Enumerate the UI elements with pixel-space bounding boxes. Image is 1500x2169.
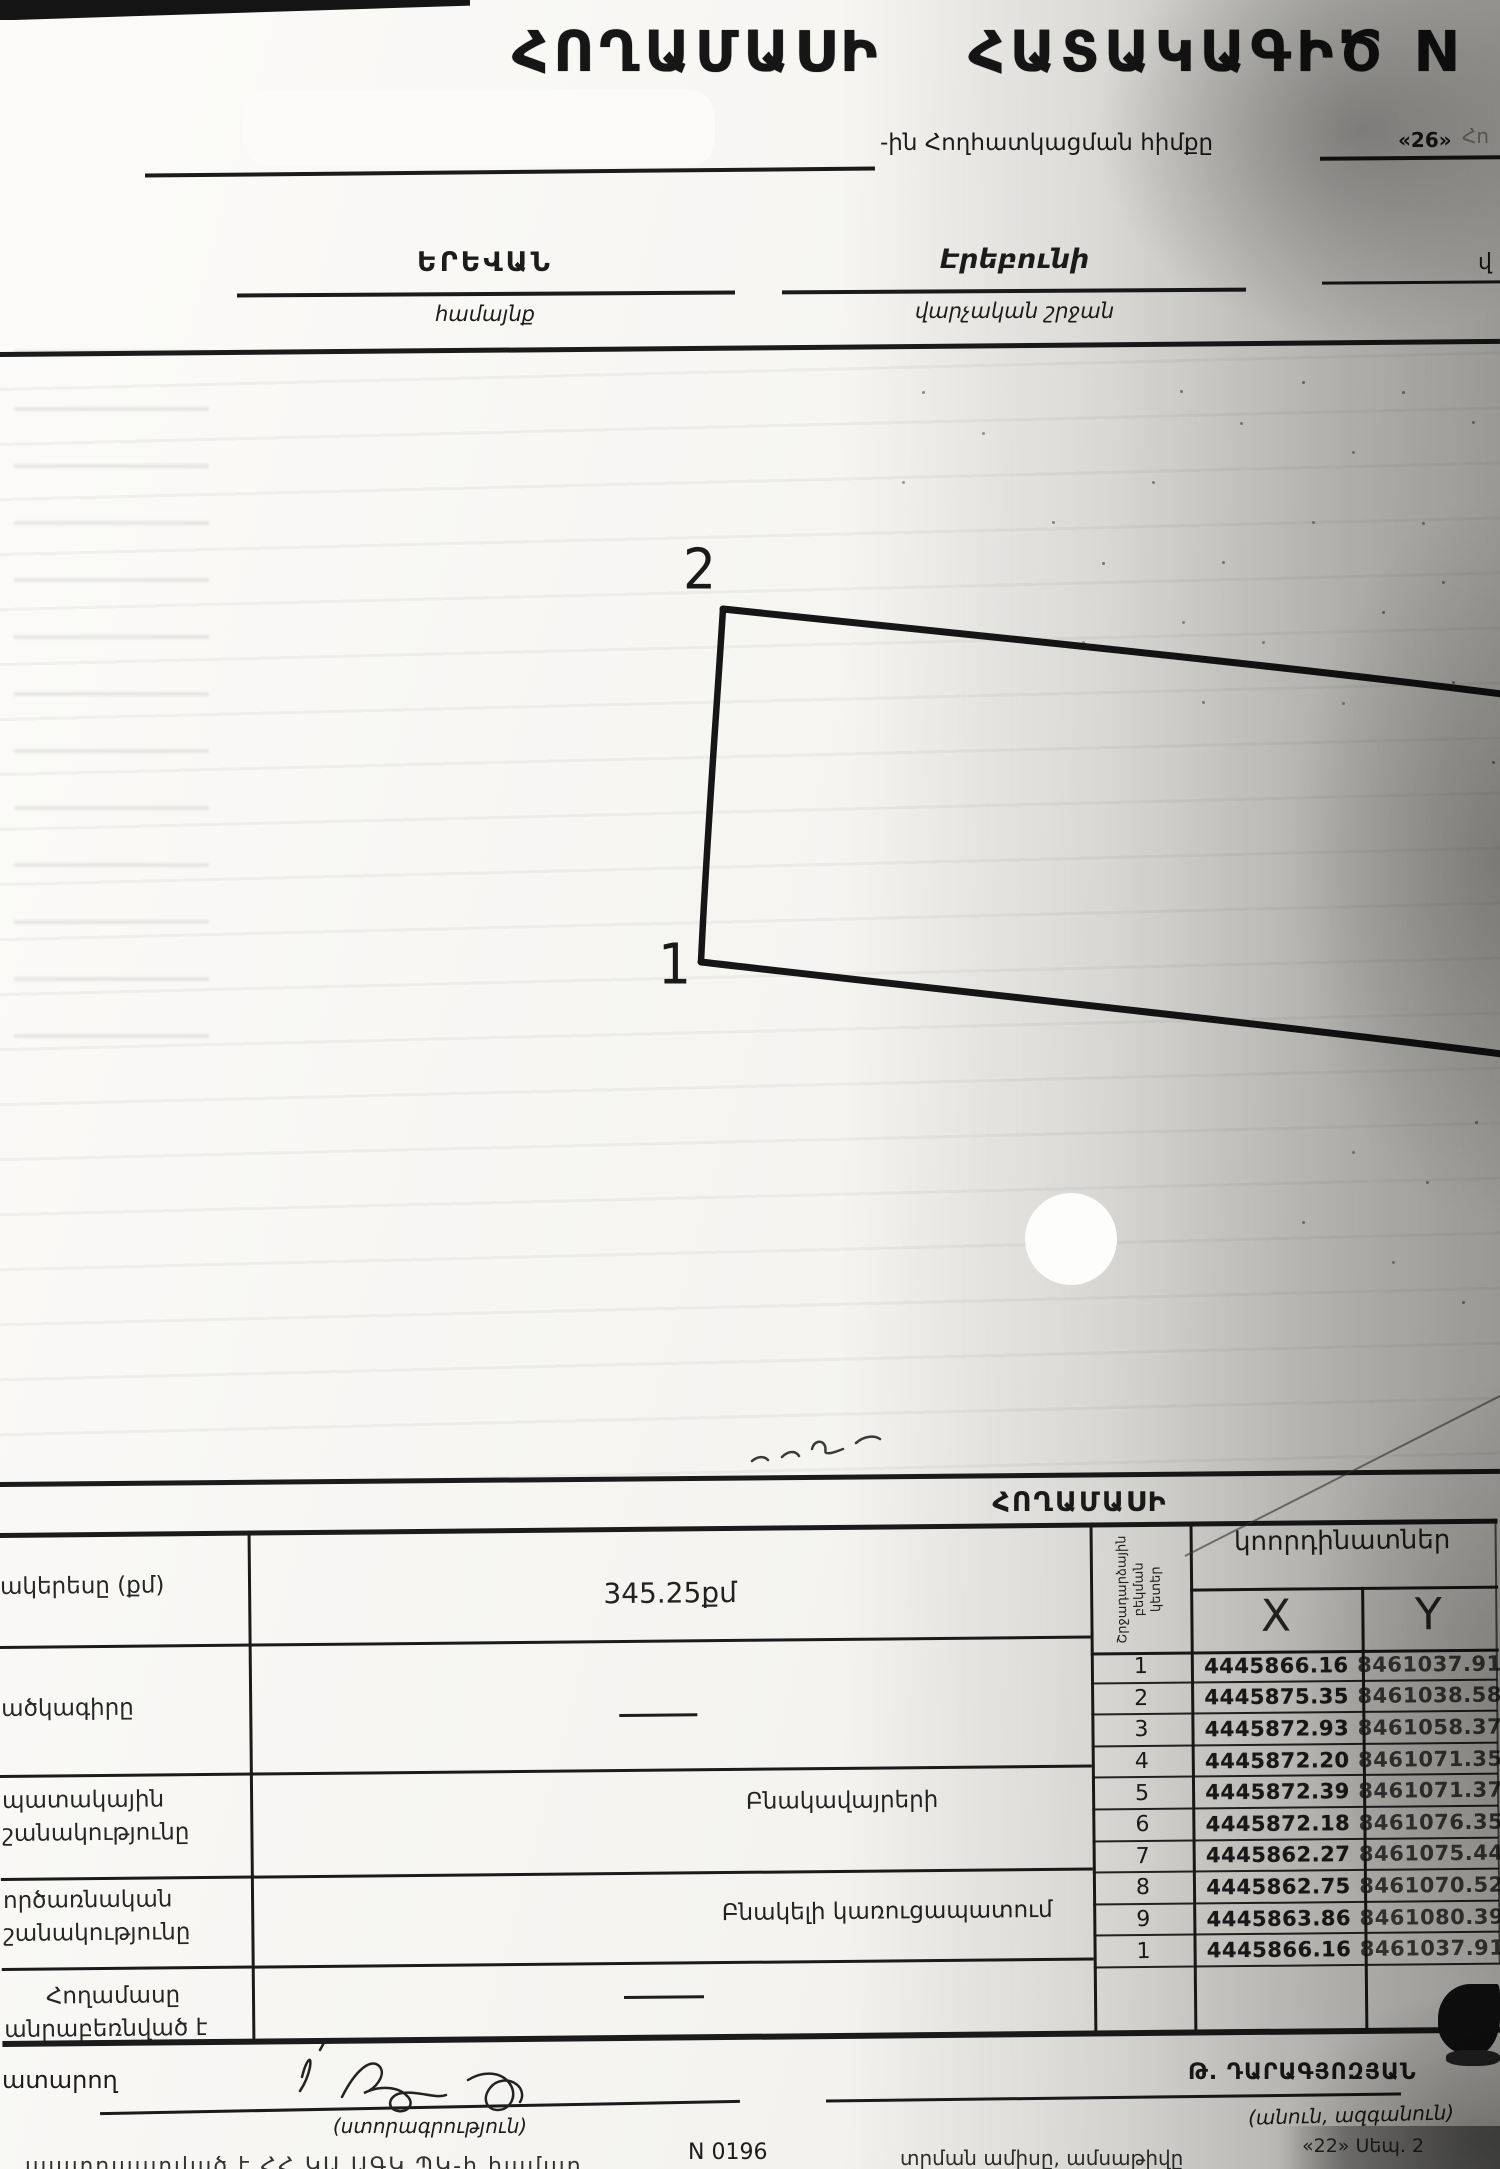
- community-caption: համայնք: [235, 302, 735, 326]
- x-value: 4445866.16: [1191, 1650, 1362, 1683]
- table-row-border: [2, 1958, 1094, 1971]
- district-caption: վարչական շրջան: [782, 299, 1247, 323]
- x-value: 4445862.75: [1193, 1871, 1364, 1904]
- performer-label: ատարող: [2, 2066, 118, 2094]
- x-value: 4445872.18: [1192, 1808, 1363, 1841]
- attributes-and-coordinates-table: ակերեսը (քմ) 345.25քմ ածկագիրը պատակային…: [0, 1519, 1500, 2046]
- bleedthrough-lines: [0, 336, 1500, 1486]
- table-bottom-border: [2, 2027, 1500, 2047]
- point-number: 8: [1093, 1873, 1193, 1906]
- document-title: ՀՈՂԱՄԱՍԻՀԱՏԱԿԱԳԻԾN: [512, 20, 1465, 85]
- plot-point-1-label: 1: [658, 933, 691, 998]
- functional-label: ործառնական շանակությունը: [3, 1883, 191, 1951]
- fill-in-line: [237, 290, 735, 297]
- x-value: 4445866.16: [1193, 1934, 1364, 1967]
- table-row-border: [0, 1765, 1092, 1778]
- turning-points-header-text: Շրջադարձային բեկման կետեր: [1114, 1535, 1166, 1644]
- bottom-cut-text: պատրաստված է ՀՀ ԿԱ ԱԳԿ ՊԿ-ի համար: [25, 2154, 583, 2169]
- section-title: ՀՈՂԱՄԱՍԻ: [975, 1487, 1185, 1518]
- x-value: 4445875.35: [1191, 1682, 1362, 1715]
- executor-name: Թ. ԴԱՐԱԳՅՈԶՅԱՆ: [1188, 2060, 1417, 2085]
- y-value: 8461080.39: [1364, 1901, 1499, 1934]
- plot-point-2-label: 2: [683, 538, 716, 603]
- area-label: ակերեսը (քմ): [0, 1569, 165, 1604]
- table-row-border: [1, 1868, 1093, 1881]
- point-number: 4: [1092, 1746, 1192, 1779]
- whiteout-dot: [1025, 1193, 1117, 1285]
- fill-in-line: [1322, 280, 1500, 284]
- encumbrance-label: Հողամասը անրաբեռնված է: [4, 1979, 208, 2047]
- x-column-header: X: [1190, 1590, 1361, 1643]
- community-value: ԵՐԵՎԱՆ: [235, 247, 735, 278]
- bleedthrough-left-margin: [14, 350, 209, 1070]
- point-number: 3: [1091, 1715, 1191, 1748]
- cut-text-fragment: վ: [1478, 250, 1492, 275]
- turning-points-column-header: Շրջադարձային բեկման կետեր: [1090, 1527, 1191, 1652]
- code-value-dash: [619, 1713, 697, 1717]
- fill-in-line: [1320, 155, 1500, 160]
- signature-caption: (ստորագրություն): [250, 2114, 610, 2138]
- x-value: 4445862.27: [1193, 1839, 1364, 1872]
- x-value: 4445872.39: [1192, 1776, 1363, 1809]
- title-cut-letter: N: [1413, 20, 1465, 85]
- signature-line: [100, 2100, 740, 2115]
- signature-scribble: [300, 2041, 522, 2111]
- fill-in-line: [782, 288, 1246, 294]
- name-line: [826, 2092, 1401, 2102]
- scan-edge-artifact: [0, 0, 470, 20]
- table-row-border: [0, 1636, 1091, 1649]
- ink-blob-artifact: [1438, 1984, 1500, 2056]
- ink-blob-artifact: [1446, 2050, 1500, 2066]
- title-word-1: ՀՈՂԱՄԱՍԻ: [512, 20, 882, 85]
- y-value: 8461076.35: [1363, 1807, 1498, 1840]
- x-value: 4445872.93: [1191, 1713, 1362, 1746]
- area-value: 345.25քմ: [250, 1573, 1090, 1614]
- point-number: 7: [1093, 1841, 1193, 1874]
- y-value: 8461075.44: [1364, 1838, 1499, 1871]
- purpose-label: պատակային շանակությունը: [2, 1783, 190, 1851]
- y-column-header: Y: [1361, 1589, 1495, 1641]
- x-value: 4445872.20: [1192, 1745, 1363, 1778]
- code-label: ածկագիրը: [1, 1692, 134, 1726]
- point-number: 2: [1091, 1683, 1191, 1716]
- functional-label-line2: շանակությունը: [3, 1916, 190, 1951]
- whiteout-patch: [243, 90, 715, 166]
- allocation-basis-label: -ին Հողհատկացման հիմքը: [880, 130, 1213, 156]
- district-value: Էրեբունի: [782, 244, 1247, 275]
- y-value: 8461058.37: [1362, 1712, 1497, 1745]
- date-value: «22» Սեպ. 2: [1302, 2135, 1424, 2157]
- encumbrance-value-dash: [624, 1995, 704, 1999]
- scanned-document-page: ՀՈՂԱՄԱՍԻՀԱՏԱԿԱԳԻԾN -ին Հողհատկացման հիմք…: [0, 0, 1500, 2169]
- allocation-basis-number: «26»: [1398, 128, 1452, 152]
- y-value: 8461071.37: [1363, 1775, 1498, 1808]
- faint-text-fragment: Հո: [1462, 124, 1489, 148]
- y-value: 8461070.52: [1364, 1870, 1499, 1903]
- coordinates-grid: 14445866.168461037.91 24445875.358461038…: [1091, 1649, 1500, 1969]
- coordinates-header: կոորդինատներ: [1190, 1525, 1495, 1558]
- x-value: 4445863.86: [1193, 1903, 1364, 1936]
- point-number: 6: [1092, 1810, 1192, 1843]
- fill-in-line: [145, 166, 875, 177]
- date-caption: տրման ամիսը, ամսաթիվը: [900, 2146, 1183, 2169]
- encumbrance-label-line1: Հողամասը: [4, 1979, 207, 2014]
- scan-speckles: [0, 0, 3, 3]
- form-number: N 0196: [688, 2140, 767, 2165]
- y-value: 8461037.91: [1362, 1649, 1497, 1682]
- point-number: 1: [1091, 1652, 1191, 1685]
- point-number: 1: [1093, 1936, 1193, 1969]
- y-value: 8461038.58: [1362, 1680, 1497, 1713]
- purpose-label-line1: պատակային: [2, 1783, 189, 1818]
- functional-label-line1: ործառնական: [3, 1883, 190, 1918]
- point-number: 9: [1093, 1904, 1193, 1937]
- y-value: 8461071.35: [1363, 1743, 1498, 1776]
- purpose-label-line2: շանակությունը: [2, 1816, 189, 1851]
- title-word-2: ՀԱՏԱԿԱԳԻԾ: [968, 20, 1387, 85]
- y-value: 8461037.91: [1364, 1933, 1499, 1966]
- point-number: 5: [1092, 1778, 1192, 1811]
